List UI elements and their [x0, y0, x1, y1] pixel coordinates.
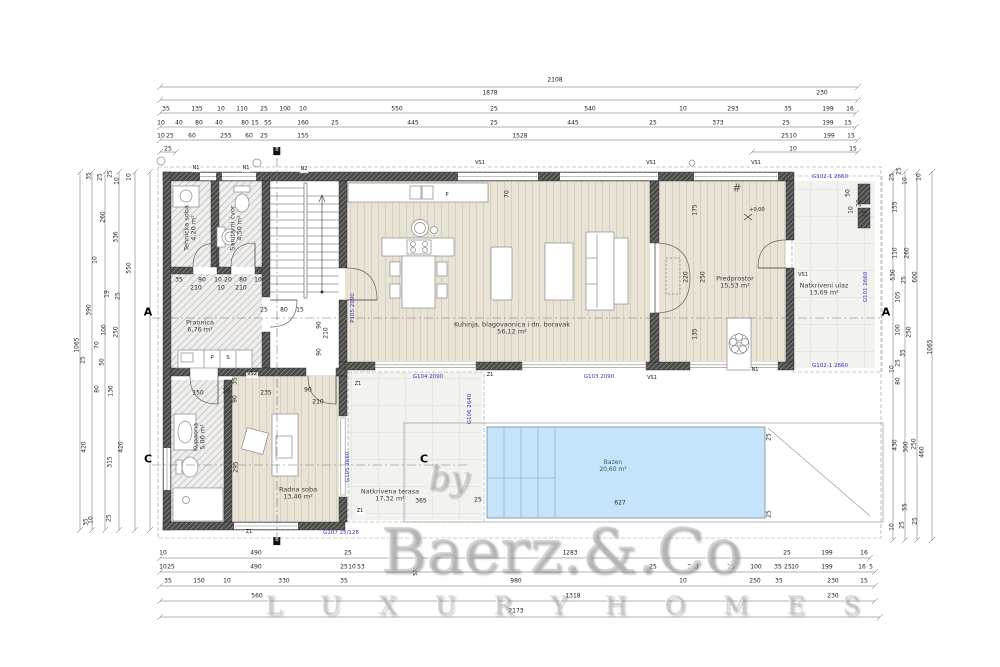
- dim-label: 10: [299, 107, 307, 114]
- dim-label: 550: [127, 262, 134, 273]
- dim-label: 25: [767, 510, 774, 518]
- wall-tag-label: N1: [192, 166, 201, 172]
- door-code-label: G103 2090: [584, 374, 615, 380]
- dim-label: 390: [87, 304, 94, 315]
- door-code-label: G107 25/128: [323, 530, 359, 536]
- dim-label: 295: [234, 461, 241, 472]
- door-code-label: G102-1 2660: [812, 174, 848, 180]
- dim-label: 1283: [562, 551, 577, 558]
- dim-label: 25: [164, 147, 172, 154]
- dim-label: 445: [567, 121, 578, 128]
- dim-label: 10: [849, 206, 856, 214]
- dim-label: 100: [102, 324, 109, 335]
- dim-label: 35: [784, 107, 792, 114]
- dim-label: 15: [847, 134, 855, 141]
- dim-label: 230: [816, 91, 827, 98]
- dim-label: 110: [893, 247, 900, 258]
- dim-label: 373: [712, 121, 723, 128]
- floor-plan-page: 2108187823035135101102510010550255401029…: [0, 0, 1000, 667]
- dim-label: 25: [490, 121, 498, 128]
- dim-label: 10: [789, 134, 797, 141]
- room-label-entrance: Natkriveni ulaz 13,69 m²: [800, 283, 849, 298]
- dim-label: 300: [904, 441, 911, 452]
- dim-label: 35: [901, 349, 908, 357]
- dim-label: 980: [510, 579, 521, 586]
- dim-label: 25: [781, 134, 789, 141]
- dim-label: 25: [767, 433, 774, 441]
- dim-label: 10: [903, 177, 910, 185]
- dim-label: 155: [893, 201, 900, 212]
- dim-label: 235: [260, 391, 271, 398]
- dim-label: 55: [264, 121, 272, 128]
- dim-label: 25: [490, 107, 498, 114]
- wall-tag-label: N2: [300, 167, 309, 173]
- room-label-tech: Tehnička soba 4,20 m²: [184, 205, 199, 251]
- door-code-label: G104 2090: [413, 374, 444, 380]
- section-box-label: B: [273, 147, 280, 155]
- wall-tag-label: VS1: [750, 161, 762, 167]
- door-code-label: P105 2090: [350, 293, 356, 323]
- dim-label: 16: [860, 551, 868, 558]
- dim-label: 25: [260, 107, 268, 114]
- dim-label: 1318: [565, 594, 580, 601]
- dim-label: 10: [157, 134, 165, 141]
- room-label-laundry: Praonica 6,76 m²: [186, 320, 214, 335]
- dim-label: 16: [858, 565, 866, 572]
- dim-label: 203: [687, 565, 698, 572]
- dim-label: 35: [233, 377, 240, 385]
- dim-label: +0,00: [749, 208, 764, 214]
- dim-label: 40: [175, 121, 183, 128]
- dim-label: 10: [89, 516, 96, 524]
- dim-label: 25: [783, 551, 791, 558]
- dim-label: 100: [896, 324, 903, 335]
- dim-label: 210: [190, 286, 201, 293]
- dim-label: 10: [157, 121, 165, 128]
- dim-label: 130: [109, 385, 116, 396]
- dim-label: 330: [278, 579, 289, 586]
- dim-label: 16: [863, 210, 870, 218]
- dim-label: 35: [774, 565, 782, 572]
- wall-tag-label: VS1: [797, 273, 809, 279]
- dim-label: 20: [857, 199, 864, 207]
- room-label-pool: Bazen 20,60 m²: [599, 460, 626, 474]
- dim-label: 10: [93, 256, 100, 264]
- dim-label: 10: [679, 579, 687, 586]
- dim-label: 16: [846, 107, 854, 114]
- dim-label: 25: [902, 276, 909, 284]
- dim-label: 19: [105, 290, 112, 298]
- dim-label: 540: [584, 107, 595, 114]
- dim-label: 15: [860, 579, 868, 586]
- dim-label: 15: [844, 121, 852, 128]
- dim-label: 490: [250, 565, 261, 572]
- wall-tag-label: VS1: [646, 376, 658, 382]
- dim-label: 175: [693, 204, 700, 215]
- dim-label: 35: [340, 579, 348, 586]
- dim-label: 315: [108, 456, 115, 467]
- dim-label: 50: [100, 358, 107, 366]
- dim-label: 490: [250, 551, 261, 558]
- wall-tag-label: Z1: [354, 382, 363, 388]
- dim-label: 1065: [928, 339, 935, 354]
- dim-label: 210: [312, 400, 323, 407]
- dim-label: 25: [344, 551, 352, 558]
- section-box-label: B: [273, 537, 280, 545]
- dim-label: 155: [297, 134, 308, 141]
- dim-label: 70: [505, 190, 512, 198]
- dim-label: 25: [474, 498, 482, 505]
- dim-label: 90: [198, 278, 206, 285]
- dim-label: 250: [749, 579, 760, 586]
- dim-label: 10: [217, 107, 225, 114]
- dim-label: 250: [912, 438, 919, 449]
- dim-label: 250: [907, 326, 914, 337]
- dim-label: P: [210, 355, 213, 361]
- dim-label: 25: [167, 565, 175, 572]
- dim-label: 250: [701, 271, 708, 282]
- wall-tag-label: Z1: [245, 530, 254, 536]
- dim-label: 420: [119, 441, 126, 452]
- dim-label: 15: [251, 121, 259, 128]
- dim-label: 230: [827, 594, 838, 601]
- dim-label: 25: [896, 359, 903, 367]
- dim-label: 25: [649, 121, 657, 128]
- wall-tag-label: Z1: [356, 509, 365, 515]
- dim-label: 150: [193, 579, 204, 586]
- dim-label: 25: [913, 517, 920, 525]
- dim-label: 220: [684, 271, 691, 282]
- door-code-label: G105 2660: [345, 452, 351, 483]
- dim-label: 550: [391, 107, 402, 114]
- dim-label: 25: [260, 134, 268, 141]
- dim-label: 230: [827, 579, 838, 586]
- dim-label: 105: [896, 291, 903, 302]
- dim-label: 25: [81, 356, 88, 364]
- dim-label: 530: [891, 269, 898, 280]
- dim-label: 90: [233, 395, 240, 403]
- dim-label: 10: [159, 551, 167, 558]
- wall-tag-label: VS1: [474, 161, 486, 167]
- door-code-label: G106 2640: [467, 394, 473, 425]
- dim-label: 100: [279, 107, 290, 114]
- dim-label: 575: [414, 566, 420, 576]
- dim-label: 80: [195, 121, 203, 128]
- wall-tag-label: Z1: [486, 373, 495, 379]
- dim-label: 336: [114, 231, 121, 242]
- dim-label: 135: [191, 107, 202, 114]
- dim-label: 110: [236, 107, 247, 114]
- dim-label: 210: [324, 327, 331, 338]
- room-label-wc: Sanitarni čvor 4,50 m²: [230, 205, 245, 250]
- dim-label: 10: [679, 107, 687, 114]
- dim-label: 25: [331, 121, 339, 128]
- dim-label: 10: [791, 565, 799, 572]
- dim-label: 365: [415, 499, 426, 506]
- dim-label: 60: [188, 134, 196, 141]
- dim-label: 210: [235, 286, 246, 293]
- section-mark-label: C: [420, 454, 428, 467]
- dim-label: 199: [823, 134, 834, 141]
- dim-label: 2108: [547, 78, 562, 85]
- room-label-living: Kuhinja, blagovaonica i dn. boravak 56,1…: [454, 322, 570, 337]
- dim-label: 10: [217, 286, 225, 293]
- dim-label: S: [226, 355, 230, 361]
- dim-label: 255: [220, 134, 231, 141]
- dim-label: 199: [821, 565, 832, 572]
- dim-label: 35: [775, 579, 783, 586]
- dim-label: 1528: [512, 134, 527, 141]
- dim-label: 260: [101, 211, 108, 222]
- dim-label: 80: [95, 385, 102, 393]
- dim-label: 10: [127, 173, 134, 181]
- dim-label: 10: [890, 365, 897, 373]
- dim-label: 2173: [508, 609, 523, 616]
- dim-label: 25: [340, 565, 348, 572]
- dim-label: 80: [241, 121, 249, 128]
- section-mark-label: C: [144, 454, 152, 467]
- dim-label: 15: [849, 147, 857, 154]
- wall-tag-label: N1: [751, 368, 760, 374]
- dim-label: 10: [890, 523, 897, 531]
- dim-label: 10: [917, 173, 924, 181]
- dim-label: 560: [251, 594, 262, 601]
- dim-label: 25: [260, 308, 268, 315]
- dim-label: 50: [846, 189, 853, 197]
- dim-label: 1065: [75, 337, 82, 352]
- dim-label: 25: [116, 292, 123, 300]
- dim-label: 135: [693, 328, 700, 339]
- dim-label: 25: [897, 167, 904, 175]
- dim-label: 90: [317, 348, 324, 356]
- dim-label: 293: [727, 107, 738, 114]
- dim-label: 60: [245, 134, 253, 141]
- dim-label: 445: [407, 121, 418, 128]
- dim-label: 199: [821, 551, 832, 558]
- section-mark-label: A: [144, 307, 153, 320]
- dim-label: 15: [296, 308, 304, 315]
- dim-label: 10: [348, 565, 356, 572]
- dim-label: 70: [95, 341, 102, 349]
- dim-label: 5: [869, 565, 873, 572]
- dim-label: 10: [222, 389, 230, 396]
- dim-label: 80: [896, 377, 903, 385]
- dim-label: 460: [920, 446, 927, 457]
- dim-label: 1878: [482, 91, 497, 98]
- room-label-hall: Predprostor 15,53 m²: [716, 276, 754, 291]
- dim-label: 10: [115, 177, 122, 185]
- dim-label: 55: [903, 503, 910, 511]
- dim-label: 100: [750, 565, 761, 572]
- dim-label: 80: [280, 308, 288, 315]
- dim-label: 25: [727, 565, 735, 572]
- dim-label: 90: [304, 388, 312, 395]
- dim-label: 10: [159, 565, 167, 572]
- dim-label: 80: [239, 278, 247, 285]
- dim-label: 25: [166, 134, 174, 141]
- dim-label: 20: [224, 278, 232, 285]
- dim-label: 10: [223, 579, 231, 586]
- dim-label: 160: [297, 121, 308, 128]
- door-code-label: G102-1 2660: [812, 363, 848, 369]
- symbol-glyph: #: [732, 183, 741, 196]
- dim-label: 260: [905, 247, 912, 258]
- dim-label: 25: [98, 173, 105, 181]
- labels-layer: 2108187823035135101102510010550255401029…: [0, 0, 1000, 667]
- dim-label: 250: [114, 326, 121, 337]
- dim-label: 25: [782, 121, 790, 128]
- wall-tag-label: VS1: [645, 161, 657, 167]
- wall-tag-label: VS2: [246, 372, 258, 378]
- dim-label: 10: [789, 147, 797, 154]
- dim-label: P: [445, 193, 448, 199]
- dim-label: 53: [357, 565, 365, 572]
- room-label-terrace: Natkrivena terasa 17,32 m²: [361, 489, 419, 504]
- dim-label: 199: [822, 121, 833, 128]
- dim-label: 25: [107, 514, 114, 522]
- dim-label: 420: [82, 441, 89, 452]
- room-label-study: Radna soba 13,46 m²: [279, 487, 317, 502]
- dim-label: 35: [175, 278, 183, 285]
- dim-label: 199: [822, 107, 833, 114]
- dim-label: 25: [649, 565, 657, 572]
- dim-label: 10: [254, 278, 262, 285]
- dim-label: 35: [164, 579, 172, 586]
- dim-label: 430: [893, 439, 900, 450]
- dim-label: 35: [87, 172, 94, 180]
- wall-tag-label: N1: [242, 166, 251, 172]
- dim-label: 35: [162, 107, 170, 114]
- dim-label: 150: [192, 391, 203, 398]
- dim-label: 40: [215, 121, 223, 128]
- dim-label: 627: [614, 501, 625, 508]
- section-mark-label: A: [882, 307, 891, 320]
- dim-label: 25: [900, 521, 907, 529]
- room-label-bathroom: Kupaona 5,06 m²: [193, 423, 208, 451]
- door-code-label: G101 2660: [863, 272, 869, 303]
- dim-label: 10: [214, 278, 222, 285]
- dim-label: 600: [913, 271, 920, 282]
